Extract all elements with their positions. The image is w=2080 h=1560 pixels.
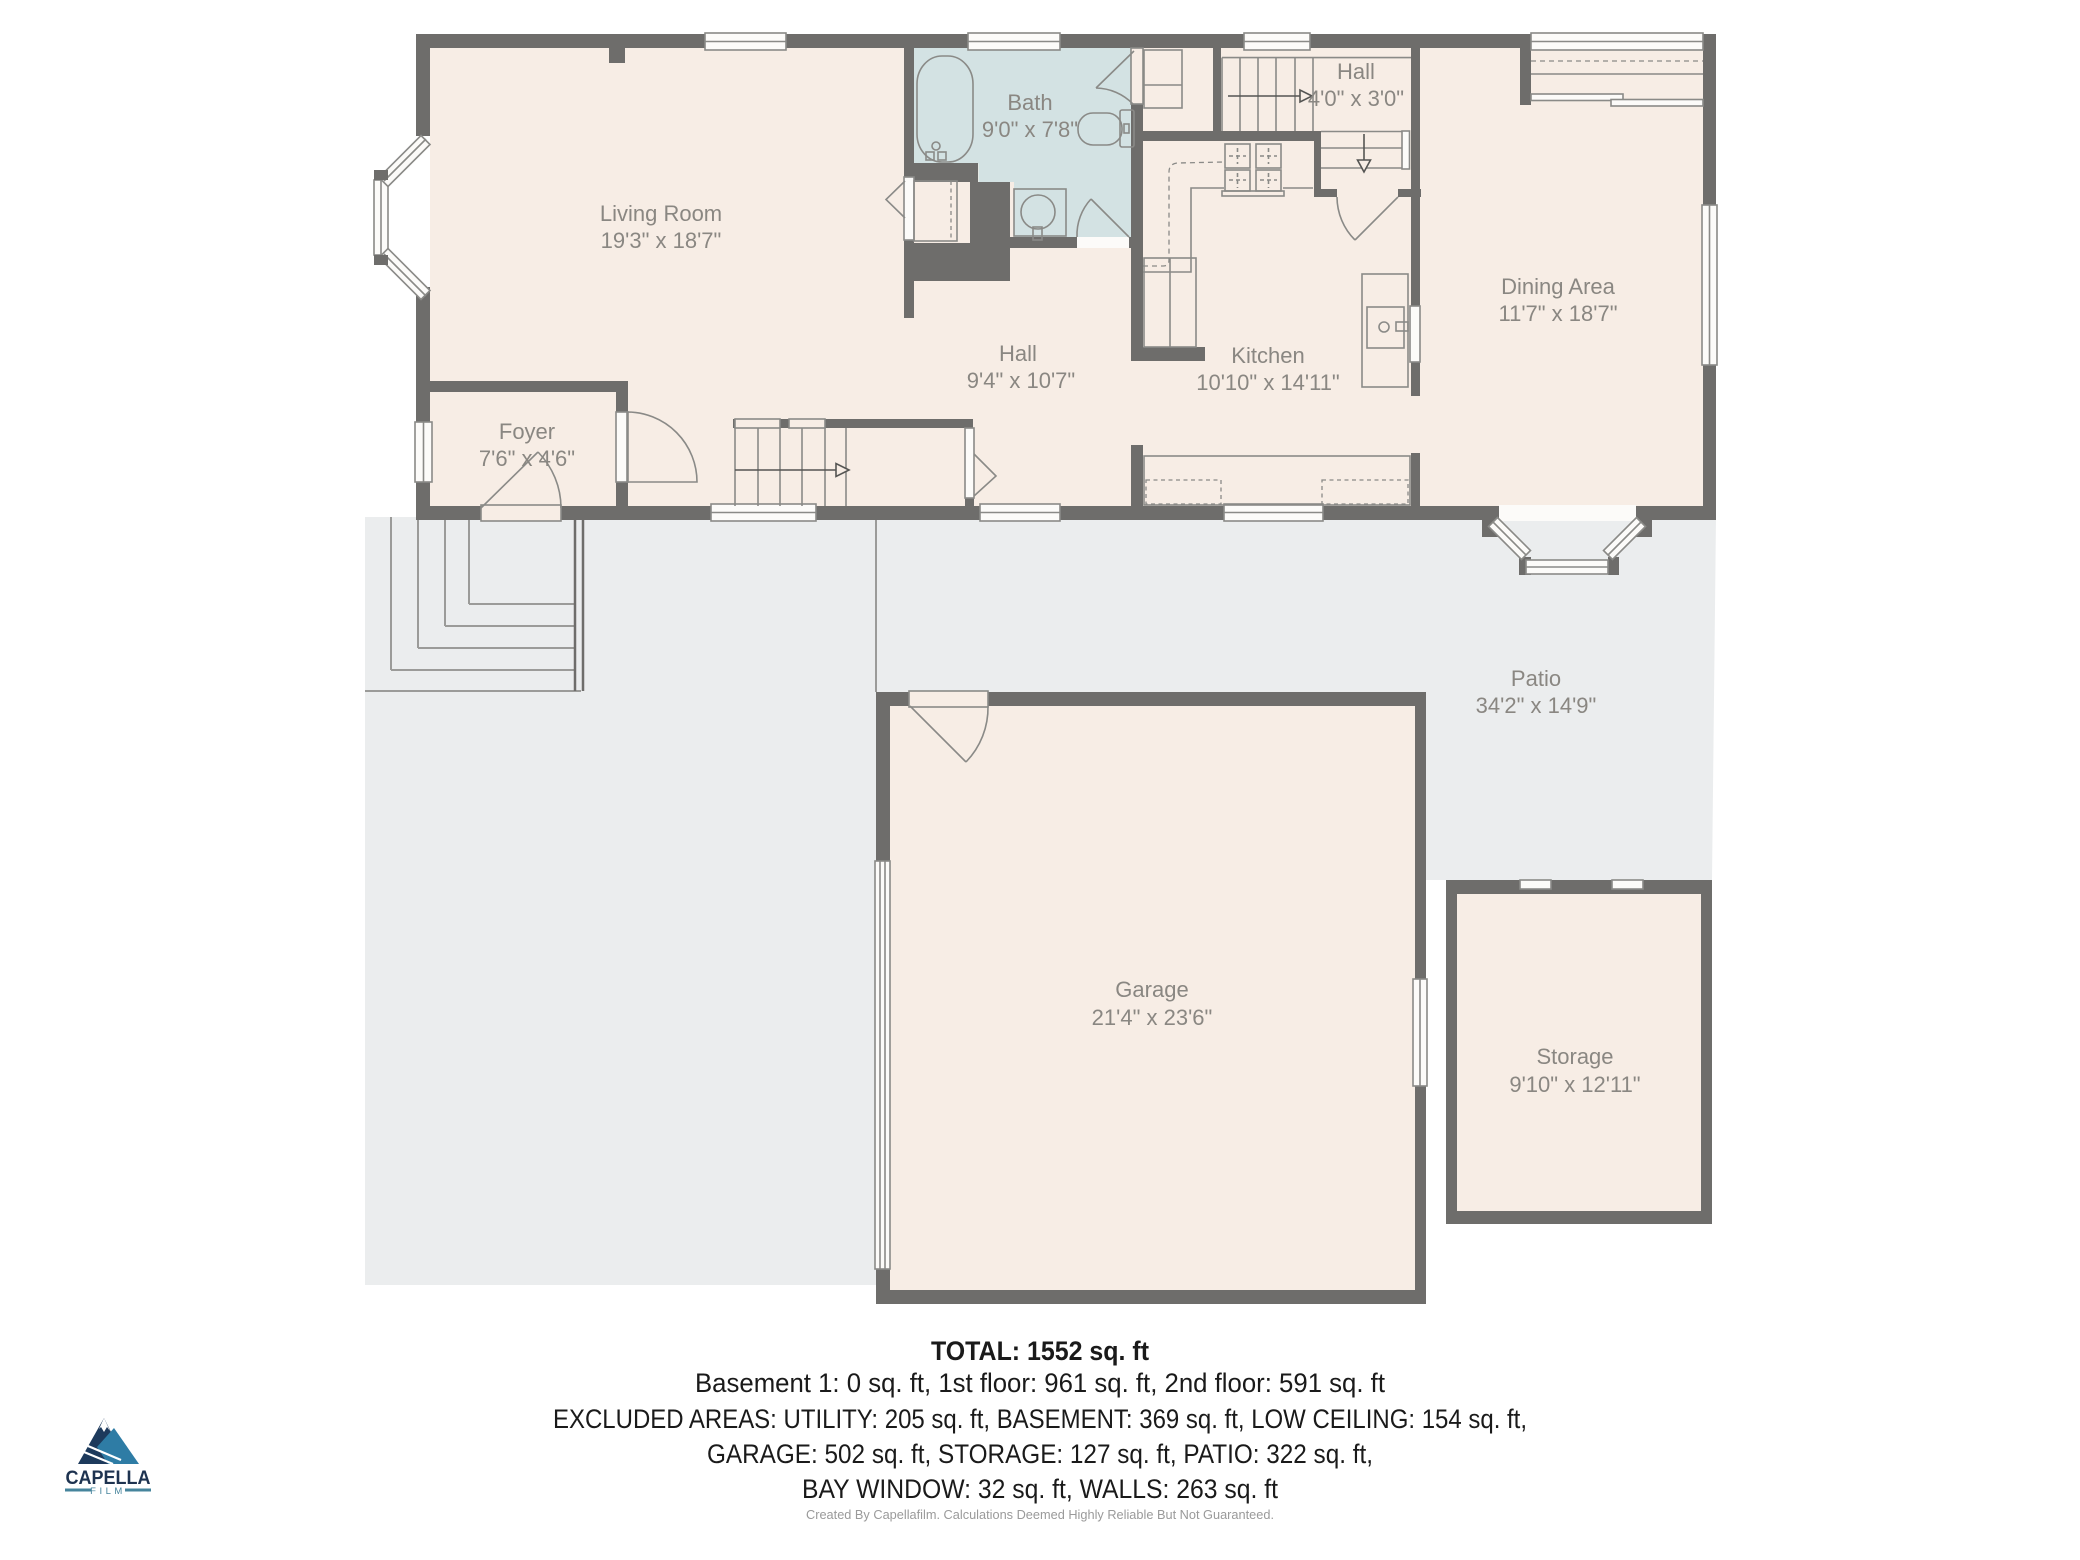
- svg-text:Created By Capellafilm. Calcul: Created By Capellafilm. Calculations Dee…: [806, 1508, 1274, 1522]
- svg-text:Hall: Hall: [999, 341, 1037, 366]
- svg-text:Garage: Garage: [1115, 977, 1188, 1002]
- svg-text:Storage: Storage: [1536, 1044, 1613, 1069]
- svg-text:Hall: Hall: [1337, 59, 1375, 84]
- svg-text:GARAGE: 502 sq. ft, STORAGE: 1: GARAGE: 502 sq. ft, STORAGE: 127 sq. ft,…: [707, 1439, 1373, 1469]
- svg-text:Basement 1: 0 sq. ft, 1st floo: Basement 1: 0 sq. ft, 1st floor: 961 sq.…: [695, 1368, 1385, 1398]
- svg-text:Foyer: Foyer: [499, 419, 555, 444]
- svg-text:Kitchen: Kitchen: [1231, 343, 1304, 368]
- svg-text:34'2" x 14'9": 34'2" x 14'9": [1476, 693, 1597, 718]
- svg-text:EXCLUDED AREAS: UTILITY: 205 s: EXCLUDED AREAS: UTILITY: 205 sq. ft, BAS…: [553, 1404, 1527, 1434]
- svg-text:21'4" x 23'6": 21'4" x 23'6": [1092, 1005, 1213, 1030]
- svg-text:10'10" x 14'11": 10'10" x 14'11": [1196, 370, 1340, 395]
- svg-text:Living Room: Living Room: [600, 201, 722, 226]
- svg-text:19'3" x 18'7": 19'3" x 18'7": [601, 228, 722, 253]
- svg-text:BAY WINDOW: 32 sq. ft, WALLS:: BAY WINDOW: 32 sq. ft, WALLS: 263 sq. ft: [802, 1474, 1278, 1504]
- svg-text:Bath: Bath: [1007, 90, 1052, 115]
- svg-text:7'6" x 4'6": 7'6" x 4'6": [479, 446, 575, 471]
- svg-text:Patio: Patio: [1511, 666, 1561, 691]
- svg-text:9'0" x 7'8": 9'0" x 7'8": [982, 117, 1078, 142]
- svg-text:4'0" x 3'0": 4'0" x 3'0": [1308, 86, 1404, 111]
- svg-text:9'4" x 10'7": 9'4" x 10'7": [967, 368, 1075, 393]
- svg-text:9'10" x 12'11": 9'10" x 12'11": [1509, 1072, 1640, 1097]
- svg-text:FILM: FILM: [90, 1486, 126, 1497]
- svg-text:TOTAL: 1552 sq. ft: TOTAL: 1552 sq. ft: [931, 1336, 1149, 1366]
- svg-text:11'7" x 18'7": 11'7" x 18'7": [1498, 301, 1617, 326]
- svg-text:Dining Area: Dining Area: [1501, 274, 1616, 299]
